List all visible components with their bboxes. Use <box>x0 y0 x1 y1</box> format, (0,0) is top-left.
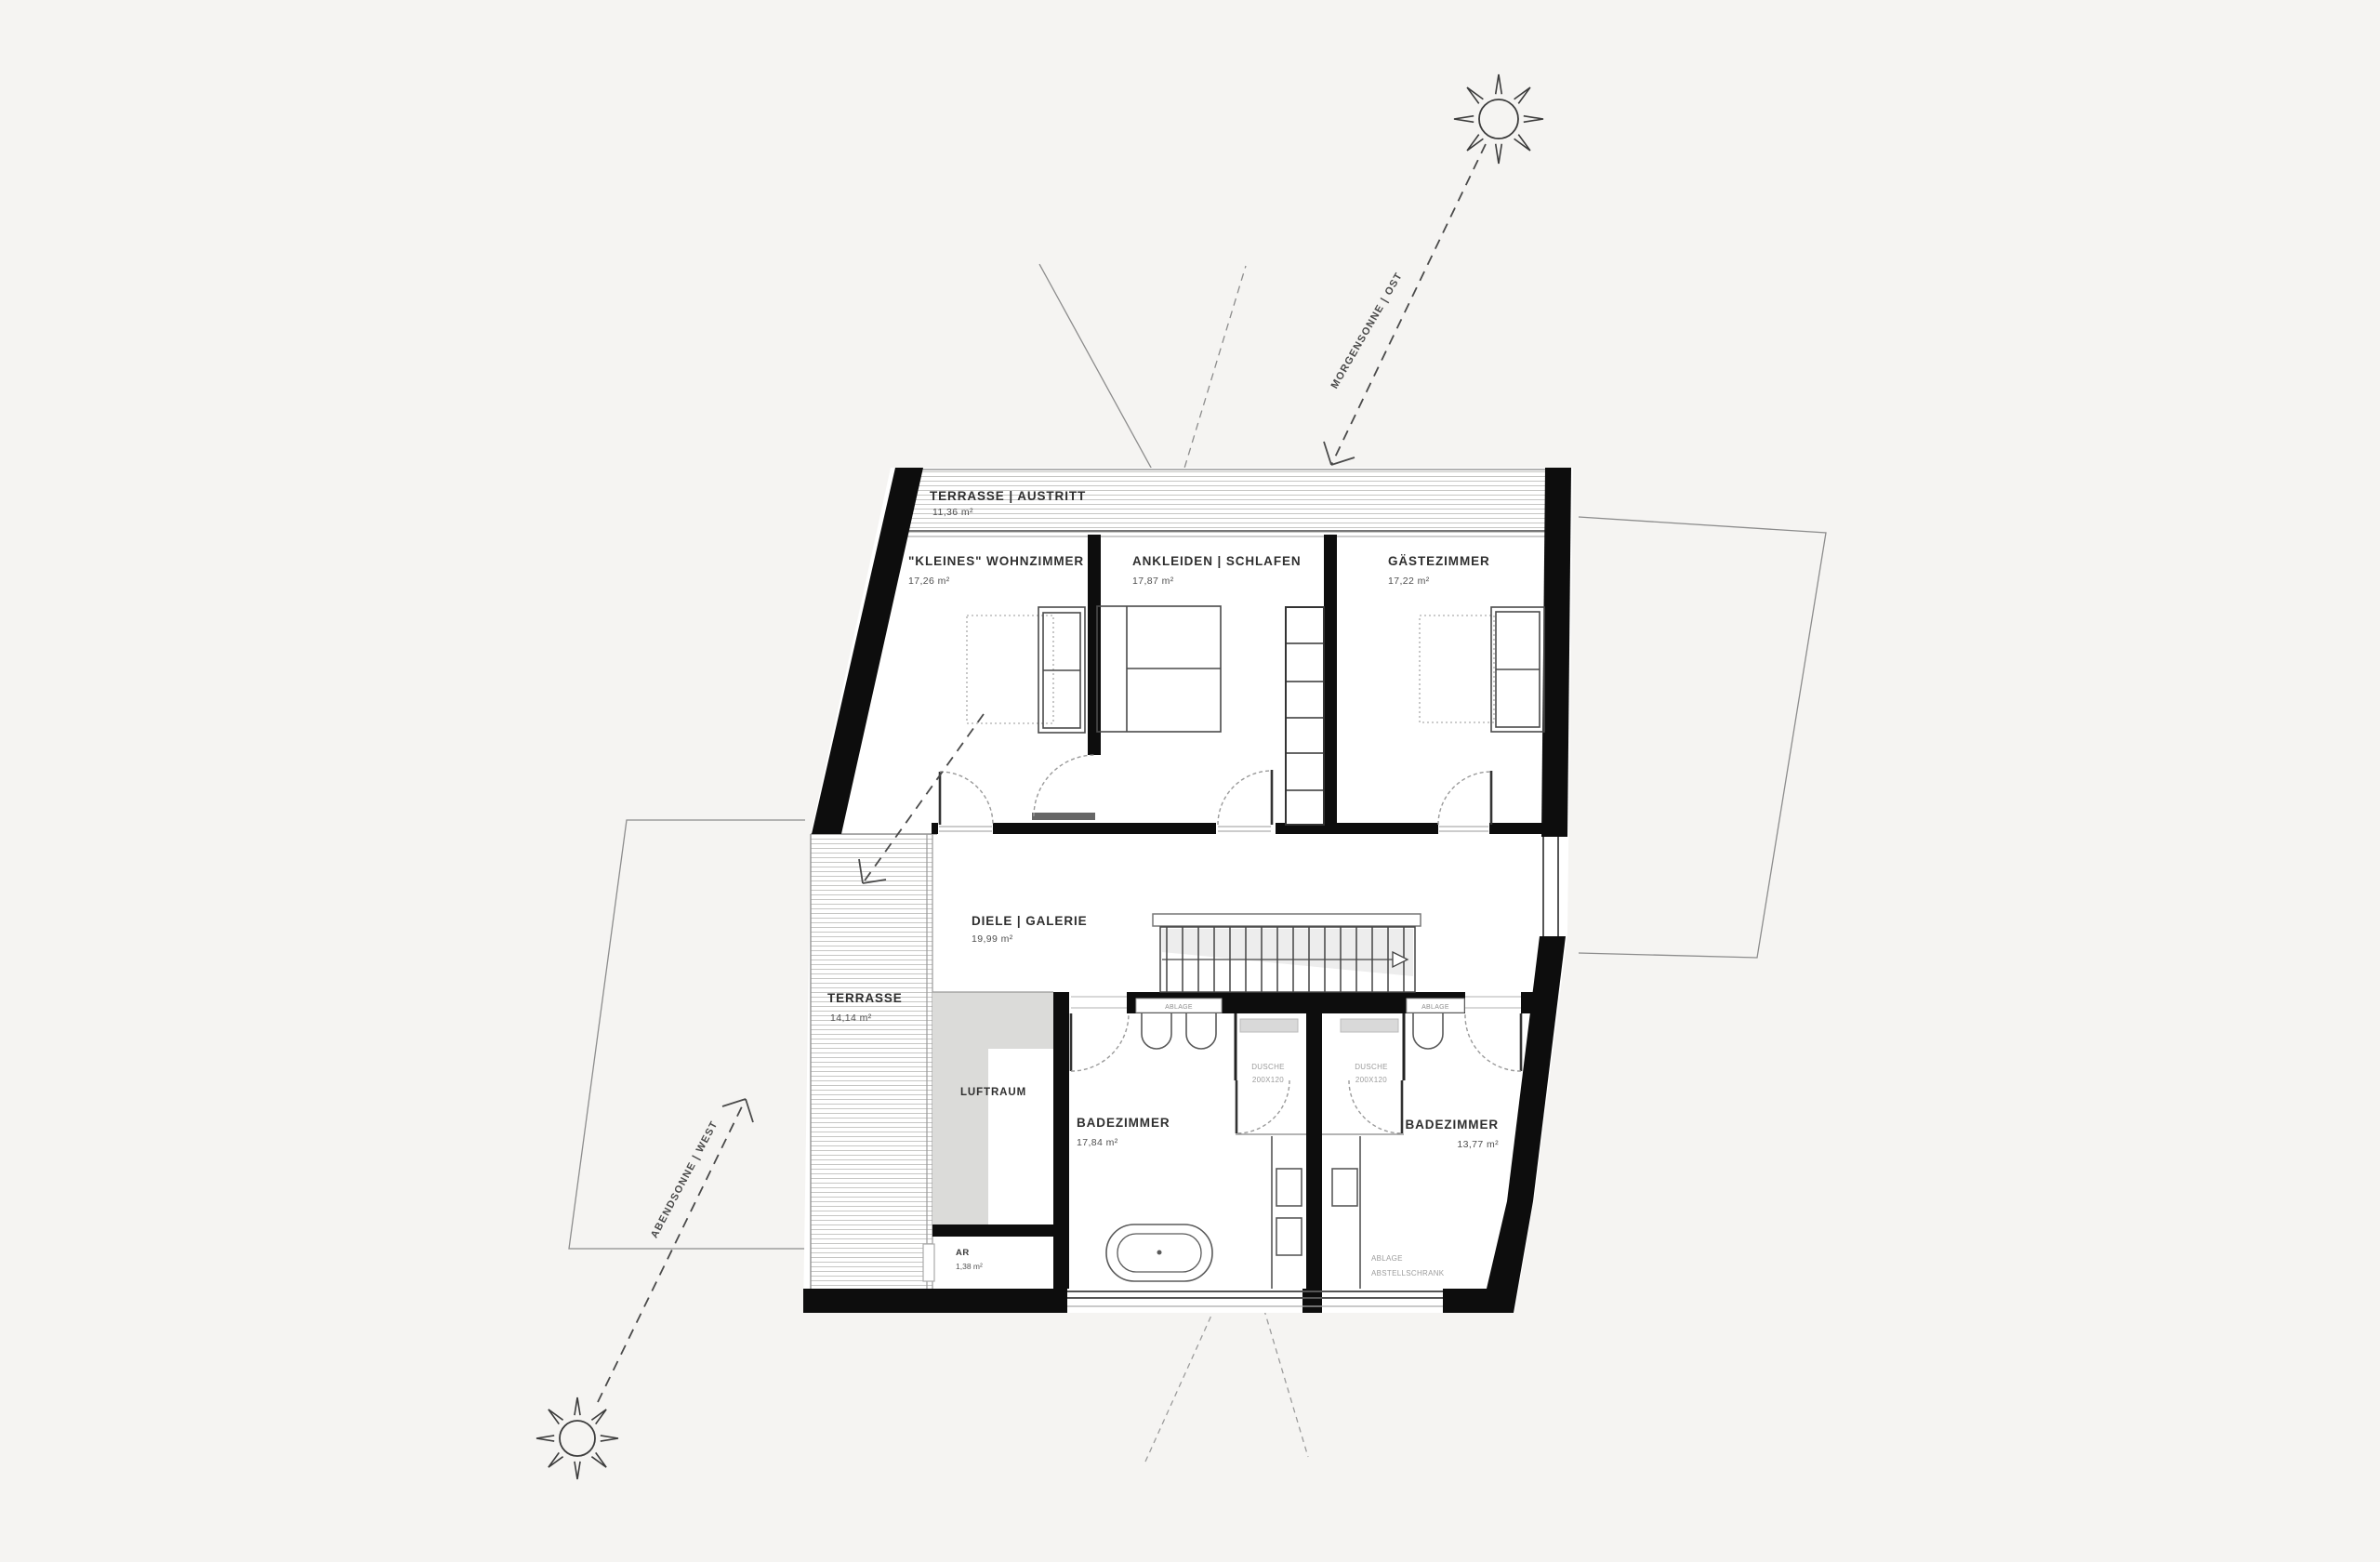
bathtub-icon <box>1106 1224 1212 1281</box>
terrace-top <box>881 470 1545 536</box>
closet-label-line1: ABLAGE <box>1371 1254 1403 1263</box>
room-area-dressing: 17,87 m² <box>1132 576 1174 587</box>
room-label-dressing: ANKLEIDEN | SCHLAFEN <box>1132 554 1302 568</box>
room-label-terrace-top: TERRASSE | AUSTRITT <box>930 489 1086 503</box>
morning-sun-label: MORGENSONNE | OST <box>1329 271 1406 390</box>
room-area-terrace-top: 11,36 m² <box>932 507 973 518</box>
room-area-guest: 17,22 m² <box>1388 576 1430 587</box>
shelf-left-label: ABLAGE <box>1165 1004 1193 1011</box>
room-area-terrace-west: 14,14 m² <box>830 1013 872 1024</box>
evening-sun-label: ABENDSONNE | WEST <box>649 1119 721 1239</box>
shower2-label-line2: 200X120 <box>1355 1076 1387 1084</box>
room-area-storage: 1,38 m² <box>956 1262 983 1271</box>
shower2-label-line1: DUSCHE <box>1355 1063 1388 1071</box>
room-label-guest: GÄSTEZIMMER <box>1388 554 1490 568</box>
room-label-hall: DIELE | GALERIE <box>972 914 1088 928</box>
room-area-bath-west: 17,84 m² <box>1077 1137 1118 1148</box>
shelf-right-label: ABLAGE <box>1421 1004 1449 1011</box>
shower1-label-line2: 200X120 <box>1252 1076 1284 1084</box>
room-label-terrace-west: TERRASSE <box>827 991 903 1005</box>
wardrobe-shelf <box>1286 607 1324 825</box>
arrowhead-icon <box>1324 442 1355 465</box>
room-area-bath-east: 13,77 m² <box>1457 1139 1499 1150</box>
floor-plan-canvas: TERRASSE | AUSTRITT 11,36 m² "KLEINES" W… <box>0 0 2380 1562</box>
room-label-storage: AR <box>956 1248 970 1258</box>
room-area-living: 17,26 m² <box>908 576 950 587</box>
sun-icon <box>536 1397 618 1479</box>
room-label-bath-west: BADEZIMMER <box>1077 1116 1170 1130</box>
arrowhead-icon <box>722 1099 753 1122</box>
shower-glass <box>1341 1019 1398 1032</box>
room-label-living: "KLEINES" WOHNZIMMER <box>908 554 1084 568</box>
sun-icon <box>1454 74 1543 164</box>
terrace-west <box>811 834 937 1289</box>
shower1-label-line1: DUSCHE <box>1251 1063 1285 1071</box>
closet-label-line2: ABSTELLSCHRANK <box>1371 1269 1445 1277</box>
shower-glass <box>1240 1019 1298 1032</box>
room-label-void: LUFTRAUM <box>960 1087 1026 1098</box>
room-area-hall: 19,99 m² <box>972 933 1013 945</box>
staircase <box>1153 914 1421 992</box>
room-label-bath-east: BADEZIMMER <box>1406 1118 1500 1132</box>
